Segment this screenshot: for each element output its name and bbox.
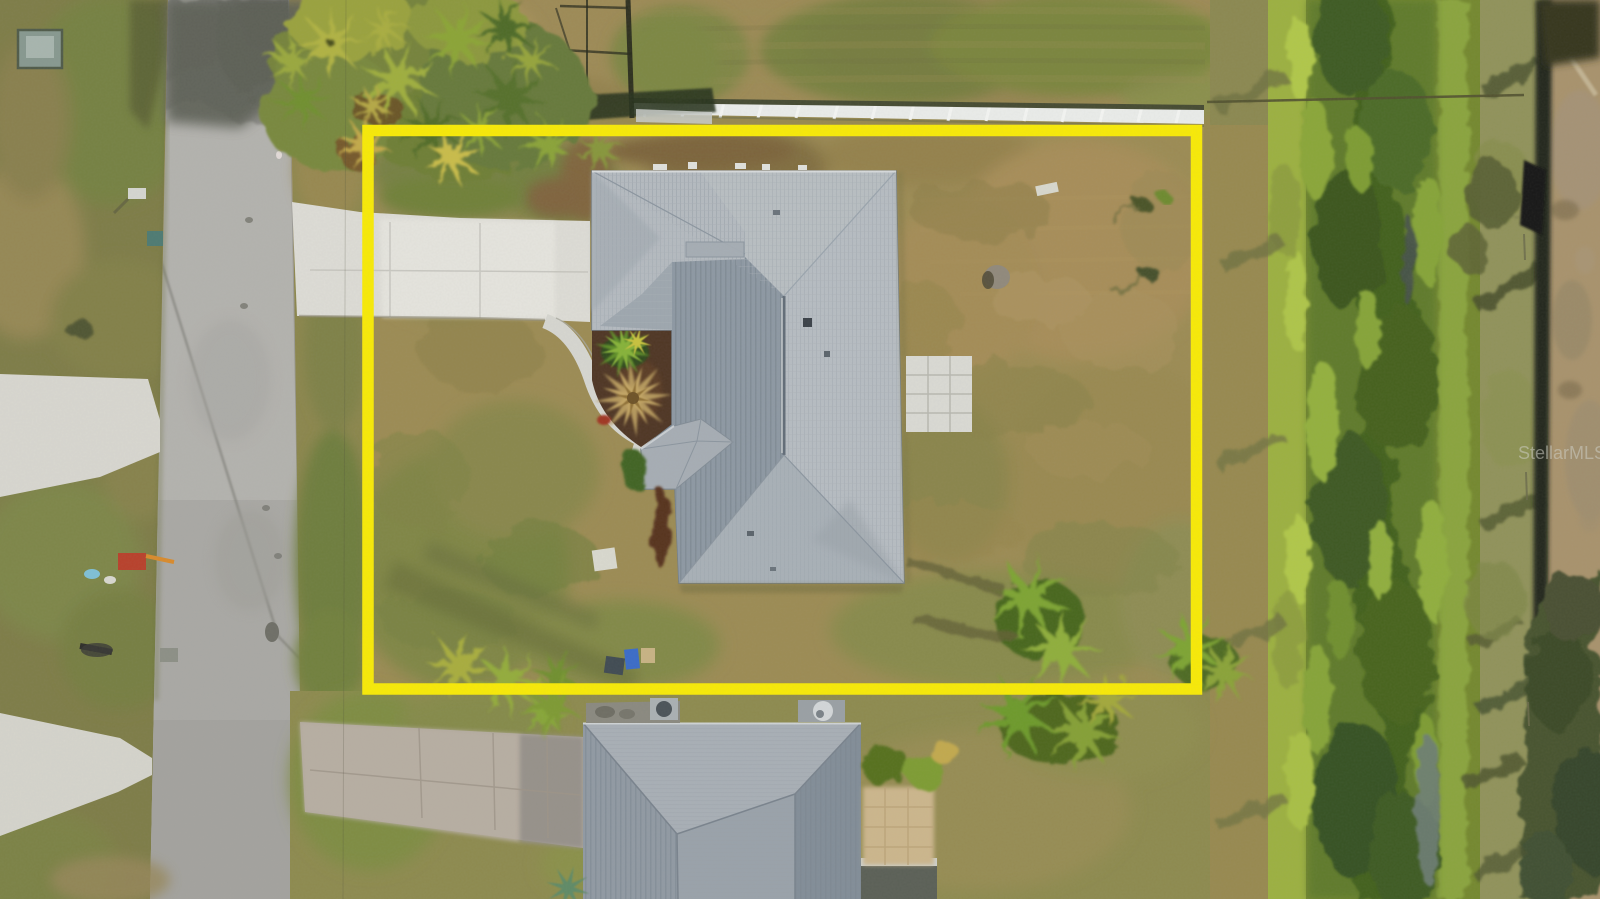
svg-text:StellarMLS: StellarMLS	[1518, 443, 1600, 463]
